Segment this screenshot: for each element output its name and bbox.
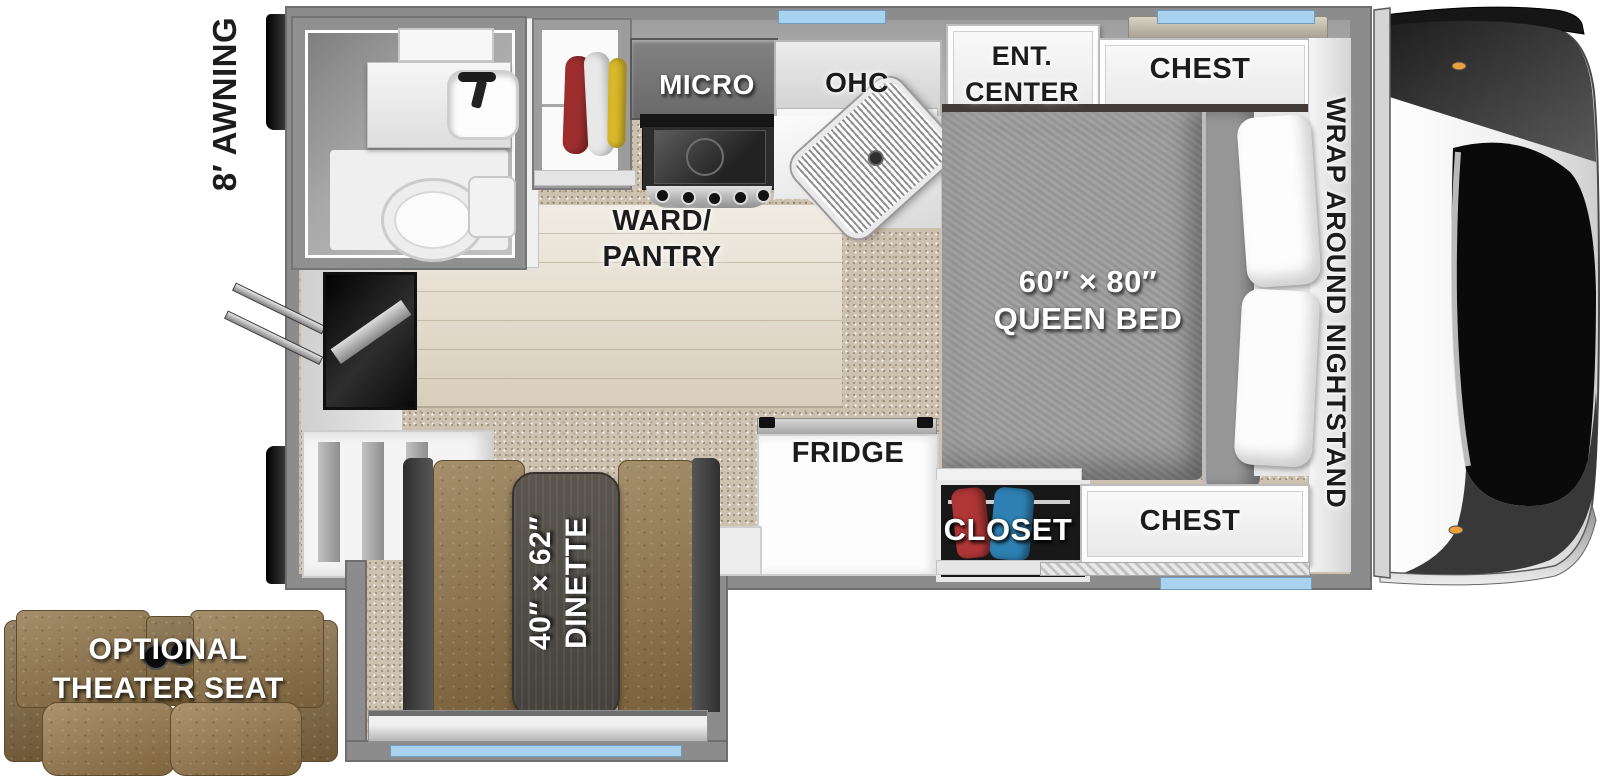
stove-knob: [657, 190, 668, 201]
theater-seat-cushion: [42, 702, 176, 776]
entry-door: [323, 272, 417, 410]
dinette-bay-wall-left: [345, 560, 367, 762]
bedroom-window-bottom: [1160, 577, 1312, 590]
bedroom-window-top: [1157, 10, 1315, 24]
theater-seat-label-line2: THEATER SEAT: [28, 673, 308, 705]
awning-rail-bottom: [266, 446, 286, 584]
stove-knob: [735, 192, 746, 203]
ent-center-label-line2: CENTER: [948, 78, 1096, 107]
bed-threshold: [1040, 562, 1310, 576]
front-cap: [1370, 0, 1600, 592]
stove-knob: [683, 192, 694, 203]
step-tread: [318, 442, 340, 562]
toilet-tank: [468, 176, 516, 238]
bed-pillow: [1233, 288, 1320, 468]
ward-pantry-label-line2: PANTRY: [577, 242, 747, 273]
dinette-bench-right: [618, 460, 696, 714]
cap-marker-light: [1449, 526, 1463, 534]
cap-windshield: [1452, 143, 1596, 506]
sink-drain: [865, 147, 888, 170]
queen-bed-label-name: QUEEN BED: [958, 303, 1218, 336]
stove-knob: [758, 190, 769, 201]
dinette-bench-back: [692, 458, 720, 712]
bed-pillow: [1236, 114, 1322, 289]
cap-left-rim: [1374, 8, 1390, 578]
floorplan-canvas: 8′ AWNING MICRO OHC ENT. CENTER CHEST WA…: [0, 0, 1600, 781]
nightstand-label: WRAP AROUND NIGHTSTAND: [1316, 73, 1350, 533]
wardrobe-base: [534, 170, 636, 186]
medicine-cabinet: [398, 28, 494, 62]
entry-door-window-glare: [331, 300, 412, 364]
theater-seat-label-line1: OPTIONAL: [28, 634, 308, 666]
micro-label: MICRO: [637, 70, 777, 100]
dinette-label-size: 40″ × 62″: [525, 473, 557, 693]
hanging-clothes-yellow: [607, 58, 627, 148]
fridge-hinge: [759, 417, 775, 428]
chest-rear-label: CHEST: [1090, 506, 1290, 537]
fridge-hinge: [917, 417, 933, 428]
queen-bed-label-size: 60″ × 80″: [958, 266, 1218, 299]
dinette-label: 40″ × 62″ DINETTE: [525, 473, 597, 693]
step-tread: [362, 442, 384, 562]
theater-seat-cushion: [170, 702, 302, 776]
awning-rail-top: [266, 14, 286, 130]
ward-pantry-label-line1: WARD/: [577, 206, 747, 237]
ohc-label: OHC: [787, 68, 927, 98]
stove-burner: [686, 138, 724, 176]
closet-label: CLOSET: [938, 514, 1078, 547]
dinette-label-name: DINETTE: [561, 473, 593, 693]
cap-marker-light: [1452, 62, 1466, 70]
kitchen-window: [778, 10, 886, 24]
dinette-bench-back: [403, 458, 433, 712]
dinette-threshold: [368, 710, 708, 742]
awning-label: 8′ AWNING: [208, 9, 248, 199]
chest-front-label: CHEST: [1100, 54, 1300, 85]
dinette-window: [390, 745, 682, 757]
ent-center-label-line1: ENT.: [948, 42, 1096, 71]
stove-knob: [709, 193, 720, 204]
fridge-label: FRIDGE: [763, 438, 933, 469]
